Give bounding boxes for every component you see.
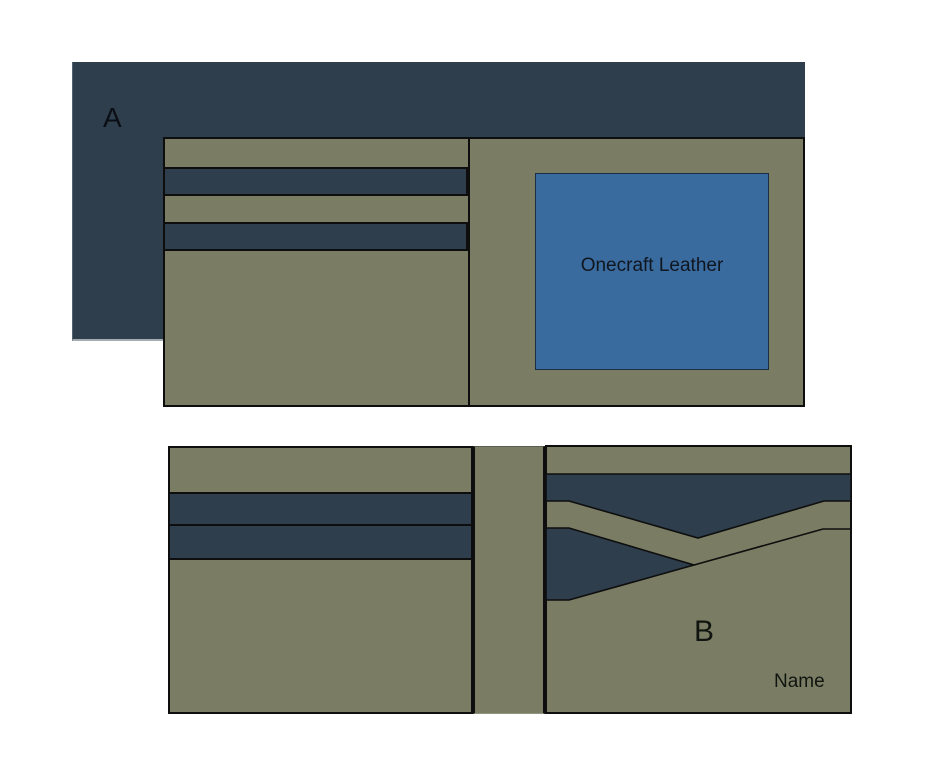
brand-patch-label: Onecraft Leather bbox=[581, 255, 724, 277]
flap-panel-b: B Name bbox=[545, 445, 852, 714]
interior-panel-a: Onecraft Leather bbox=[163, 137, 805, 407]
card-slot-strip-4 bbox=[170, 526, 471, 560]
card-slot-strip-3 bbox=[170, 492, 471, 526]
panel-b-label: B bbox=[694, 617, 714, 647]
name-tag-label: Name bbox=[774, 672, 825, 691]
wallet-diagram-canvas: A Onecraft Leather B Name bbox=[0, 0, 948, 763]
panel-divider-line bbox=[468, 139, 470, 405]
brand-patch: Onecraft Leather bbox=[535, 173, 769, 370]
card-slots-panel-b bbox=[168, 446, 473, 714]
card-slot-strip-1 bbox=[165, 167, 468, 196]
spine-strip bbox=[473, 446, 545, 714]
card-slot-strip-2 bbox=[165, 222, 468, 251]
panel-a-label: A bbox=[103, 104, 122, 132]
